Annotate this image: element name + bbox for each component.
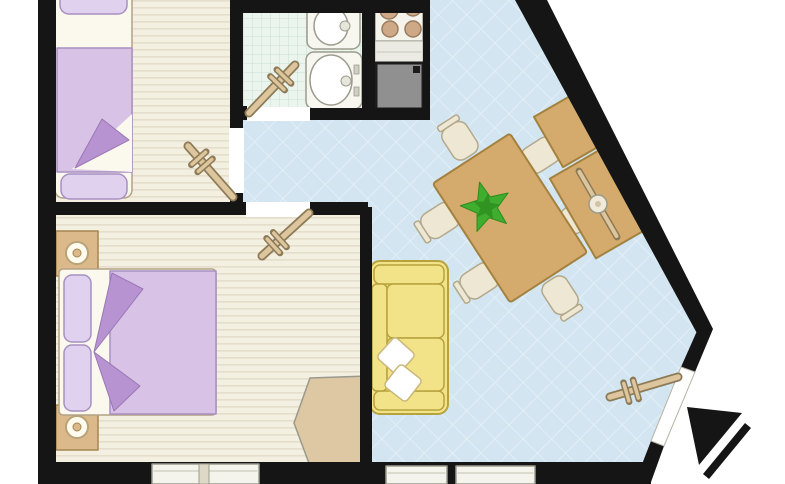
sink-detail bbox=[354, 65, 359, 74]
wall-kitchen-right bbox=[423, 0, 430, 113]
wall-bathroom-bottom-right bbox=[310, 108, 365, 120]
floor-plan-canvas bbox=[0, 0, 785, 484]
lamp-center bbox=[73, 423, 81, 431]
stove-burner bbox=[405, 21, 421, 37]
sink-tap bbox=[341, 76, 351, 86]
sink-detail bbox=[354, 87, 359, 96]
wall-left bbox=[38, 0, 56, 484]
wall-bottom bbox=[38, 462, 651, 484]
window-living-left bbox=[386, 466, 447, 484]
wall-bedrooms-divider bbox=[38, 202, 368, 215]
sofa-back bbox=[372, 284, 387, 391]
wall-kitchen-bottom bbox=[362, 108, 430, 120]
wall-bathroom-bottom-left bbox=[230, 106, 247, 120]
wall-bathroom-right bbox=[362, 0, 375, 120]
window-living-right bbox=[456, 466, 535, 484]
bed2-pillow-bottom bbox=[64, 345, 91, 411]
bed1-pillow bbox=[60, 0, 127, 14]
floor-plan-root bbox=[38, 0, 751, 484]
wall-bedroom2-right bbox=[360, 207, 372, 467]
floor-plan-image bbox=[0, 0, 785, 484]
sofa-cushion-top bbox=[387, 284, 444, 338]
bed1-bench bbox=[61, 174, 127, 199]
toilet-flush-button bbox=[340, 21, 350, 31]
sofa-arm-top bbox=[374, 265, 444, 284]
stove-burner bbox=[382, 21, 398, 37]
bedroom2-door-opening bbox=[246, 202, 310, 217]
lamp-center bbox=[73, 249, 81, 257]
entrance-arrow bbox=[687, 407, 742, 465]
window-bedroom2-post bbox=[199, 464, 209, 484]
bedroom1-door-opening bbox=[229, 128, 244, 193]
kitchen-appliance-handle bbox=[413, 66, 420, 73]
bed2-pillow-top bbox=[64, 275, 91, 342]
wall-top bbox=[230, 0, 430, 13]
